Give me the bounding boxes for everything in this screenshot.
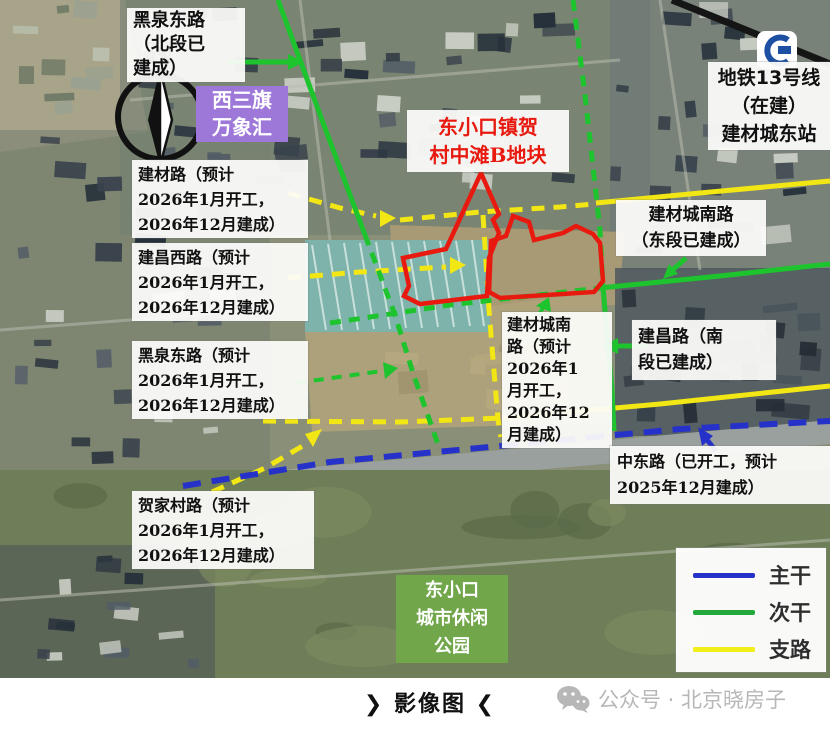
label-jianchang-rd-south: 建昌路（南 段已建成） [632,320,776,380]
label-jianchang-west-rd: 建昌西路（预计 2026年1月开工， 2026年12月建成） [132,243,308,321]
compass-needle-light [160,68,172,166]
image-caption: ❯ 影像图 ❮ [345,686,515,718]
legend-item-trunk: 主干 [676,560,826,590]
legend-line-trunk [693,573,755,578]
label-jiancaicheng-south-rd-planned: 建材城南 路（预计 2026年1 月开工， 2026年12 月建成） [502,312,612,448]
legend: 主干 次干 支路 [676,548,826,672]
watermark: 公众号 · 北京晓房子 [556,684,786,714]
label-dongxiaokou-park: 东小口 城市休闲 公园 [396,575,508,663]
legend-line-secondary [693,610,755,615]
label-zhongdong-rd: 中东路（已开工，预计 2025年12月建成） [610,446,830,504]
screenshot: N 黑泉东路 （北段已 建成） 西三旗 万象汇 建材路（预计 2026年1月开工… [0,0,830,729]
legend-label-secondary: 次干 [769,597,811,627]
legend-label-branch: 支路 [769,634,811,664]
label-hejiacun-rd: 贺家村路（预计 2026年1月开工， 2026年12月建成） [132,491,314,569]
legend-item-secondary: 次干 [676,597,826,627]
label-metro-line13-station: 地铁13号线 （在建） 建材城东站 [708,62,830,150]
legend-line-branch [693,647,755,652]
watermark-text: 公众号 · 北京晓房子 [598,684,786,714]
compass-needle-dark [148,68,160,166]
label-heiquan-east-rd-south: 黑泉东路（预计 2026年1月开工， 2026年12月建成） [132,341,308,419]
satellite-map: N 黑泉东路 （北段已 建成） 西三旗 万象汇 建材路（预计 2026年1月开工… [0,0,830,678]
label-plot-b-parcel: 东小口镇贺 村中滩B地块 [407,110,569,172]
bottom-bar: ❯ 影像图 ❮ 公众号 · 北京晓房子 [0,678,830,729]
label-xisanqi-mall: 西三旗 万象汇 [196,86,288,142]
legend-item-branch: 支路 [676,634,826,664]
label-jiancai-rd: 建材路（预计 2026年1月开工， 2026年12月建成） [132,160,308,238]
wechat-icon [556,684,590,714]
label-heiquan-east-rd-north: 黑泉东路 （北段已 建成） [127,8,245,82]
label-jiancaicheng-south-rd-east: 建材城南路 （东段已建成） [616,200,766,256]
legend-label-trunk: 主干 [769,560,811,590]
